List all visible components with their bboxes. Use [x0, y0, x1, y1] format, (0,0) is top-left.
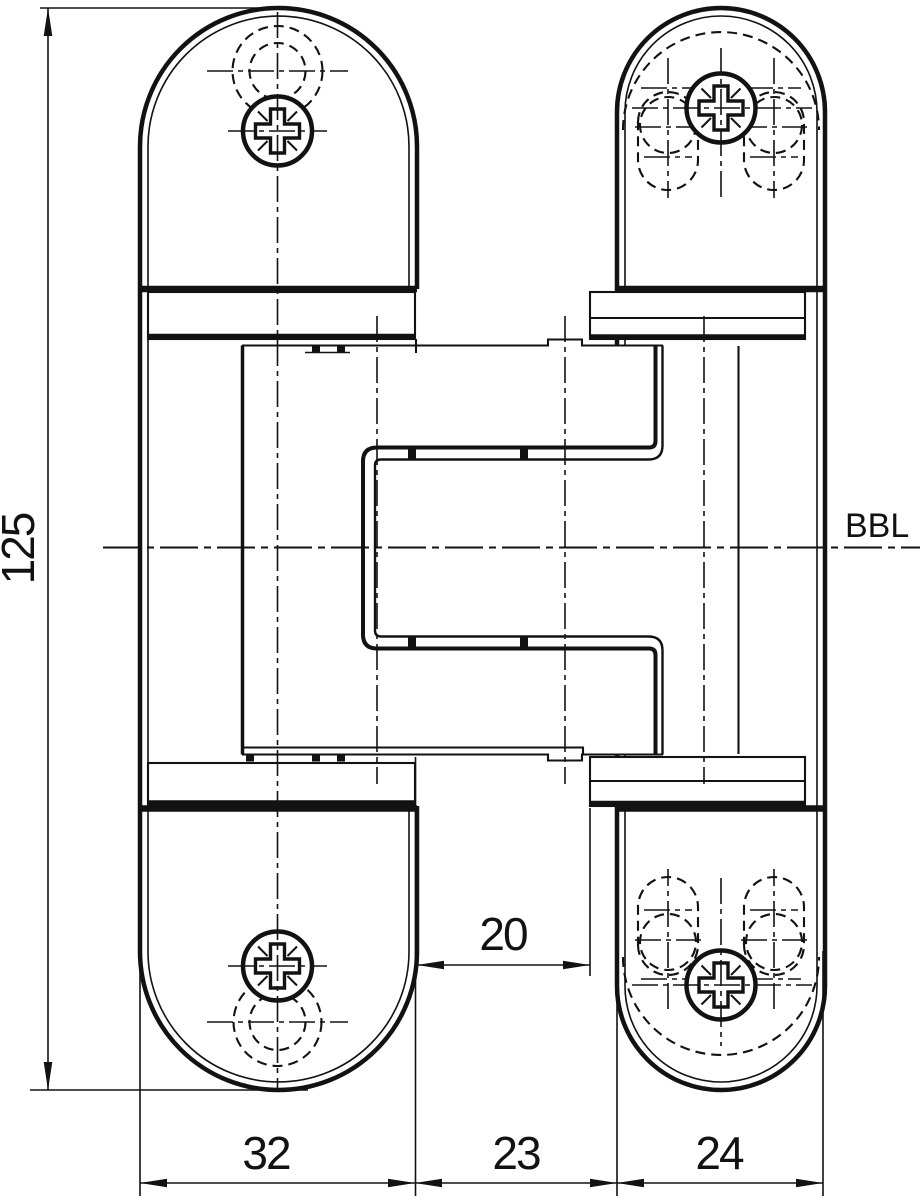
bbl-label: BBL: [845, 507, 909, 545]
dim-width-24-label: 24: [695, 1127, 744, 1179]
dim-width-32-label: 32: [242, 1127, 290, 1179]
dim-offset-label: 20: [479, 908, 527, 960]
hinge-technical-drawing: BBL 125 20 32 23 24: [0, 0, 923, 1200]
dim-height-label: 125: [0, 513, 44, 584]
hinge-drawing-canvas: BBL 125 20 32 23 24: [0, 0, 923, 1200]
dim-width-23-label: 23: [492, 1127, 540, 1179]
occlusion-mask: [242, 346, 739, 754]
